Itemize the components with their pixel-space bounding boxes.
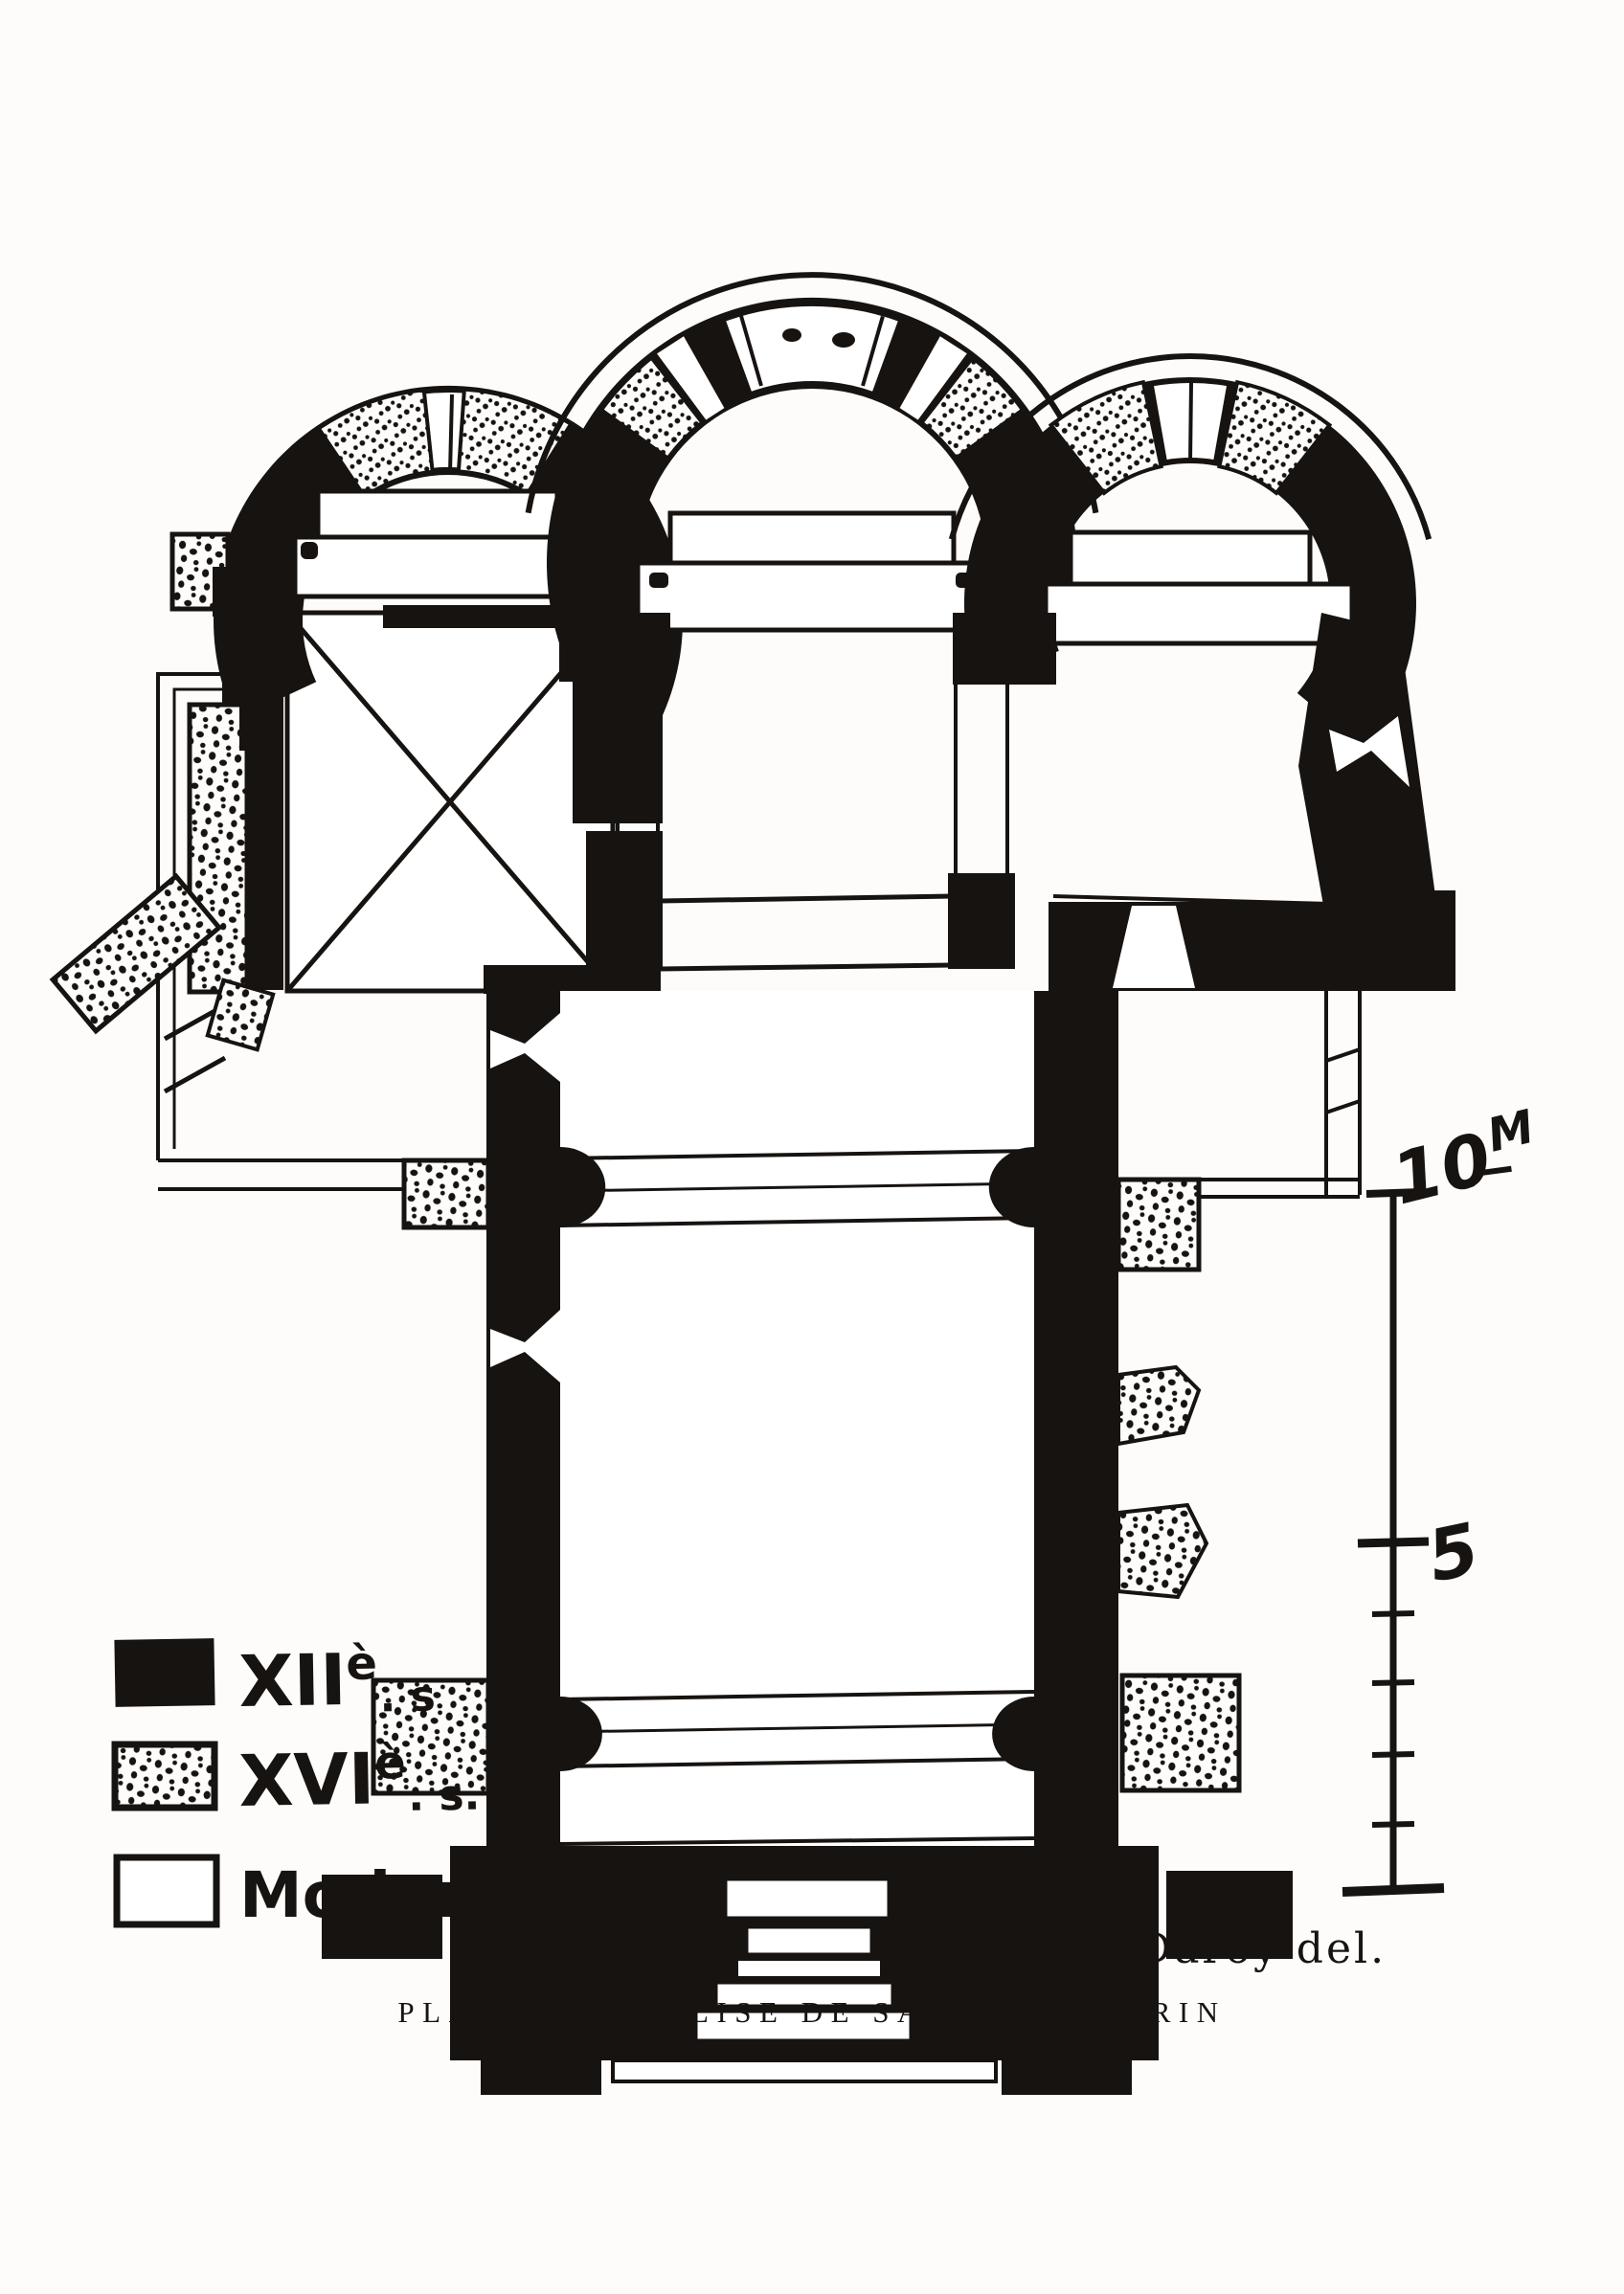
svg-text:Moderne: Moderne [239, 1858, 553, 1932]
church-floor-plan: 10M 5 XIIè. s XVIè. s. Moderne Daroy del… [0, 0, 1624, 2294]
chancel-pier [586, 831, 663, 971]
scale-tick-0 [1342, 1888, 1444, 1892]
entrance-step [736, 1959, 882, 1978]
draftsman-signature: Daroy del. [1138, 1924, 1387, 1973]
legend-swatch-solid-black [114, 1638, 214, 1707]
nave-interior [560, 991, 1034, 1846]
legend-swatch-stippled [115, 1744, 214, 1808]
scanned-plate: 10M 5 XIIè. s XVIè. s. Moderne Daroy del… [0, 0, 1624, 2294]
central-altar-step [670, 513, 954, 563]
chancel-pier [948, 873, 1015, 969]
scale-tick-5 [1358, 1541, 1429, 1543]
legend-item-modern: Moderne [117, 1857, 553, 1932]
16c-buttress [404, 1160, 488, 1227]
legend-swatch-white-outline [117, 1857, 216, 1924]
annex-16c-wall [190, 705, 247, 992]
plate-caption: PLAN DE L'ÉGLISE DE SAINT-JEANVRIN [397, 1995, 1226, 2029]
right-altar-platform [1046, 584, 1352, 643]
left-altar-step [318, 491, 557, 537]
right-altar-step [1071, 532, 1310, 584]
central-altar-platform [638, 563, 984, 630]
entrance-step [746, 1926, 872, 1955]
16c-buttress [1122, 1676, 1239, 1790]
entrance-step [725, 1878, 890, 1919]
left-altar-platform [295, 537, 586, 596]
right-chapel-south-wall [1049, 902, 1403, 991]
16c-buttress [1118, 1180, 1199, 1270]
